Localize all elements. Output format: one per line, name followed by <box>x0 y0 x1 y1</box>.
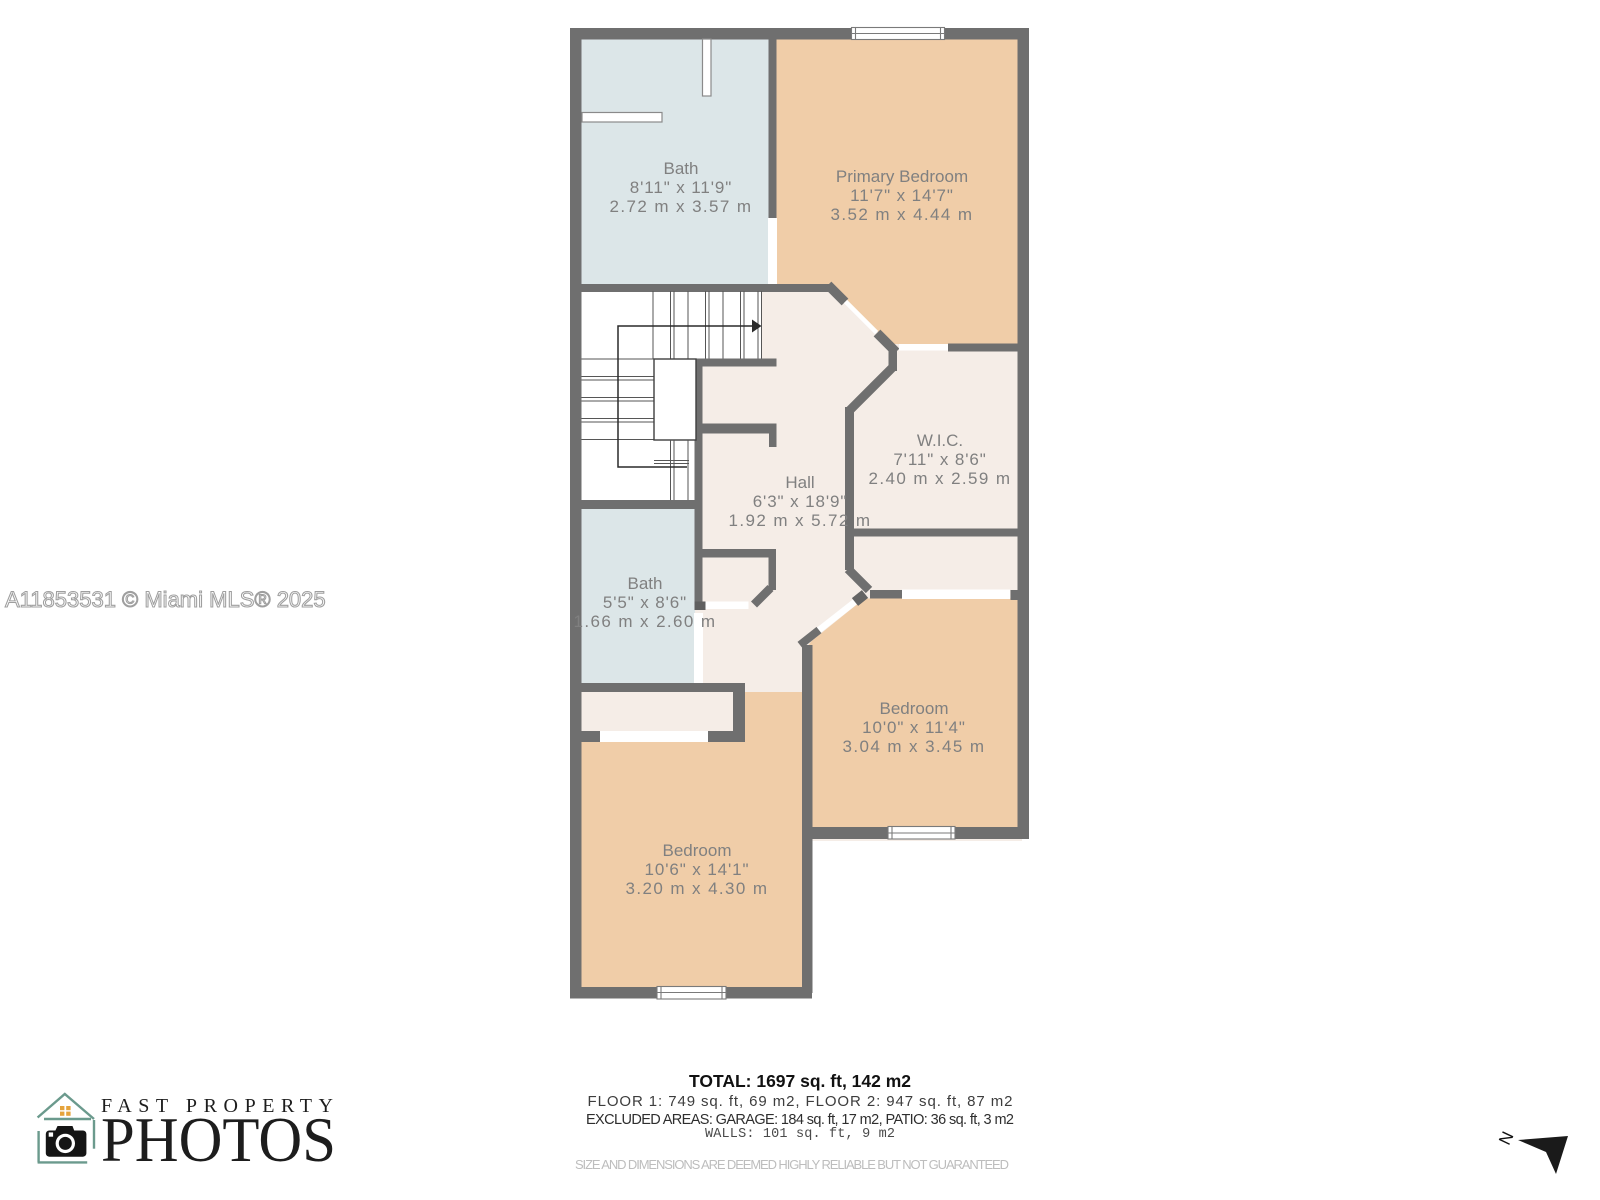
svg-text:3.04 m x 3.45 m: 3.04 m x 3.45 m <box>843 737 986 756</box>
svg-text:10'0" x 11'4": 10'0" x 11'4" <box>862 718 966 737</box>
svg-text:W.I.C.: W.I.C. <box>917 431 963 450</box>
svg-text:A11853531 © Miami MLS® 2025: A11853531 © Miami MLS® 2025 <box>5 587 326 612</box>
svg-text:PHOTOS: PHOTOS <box>101 1104 336 1175</box>
svg-text:Bedroom: Bedroom <box>663 841 732 860</box>
svg-text:Bath: Bath <box>628 574 663 593</box>
svg-text:5'5" x 8'6": 5'5" x 8'6" <box>603 593 687 612</box>
svg-text:SIZE AND DIMENSIONS ARE DEEMED: SIZE AND DIMENSIONS ARE DEEMED HIGHLY RE… <box>575 1157 1009 1172</box>
svg-text:6'3" x 18'9": 6'3" x 18'9" <box>753 492 848 511</box>
svg-text:7'11" x 8'6": 7'11" x 8'6" <box>893 450 986 469</box>
svg-text:10'6" x 14'1": 10'6" x 14'1" <box>645 860 750 879</box>
svg-text:FLOOR 1: 749 sq. ft, 69 m2, FL: FLOOR 1: 749 sq. ft, 69 m2, FLOOR 2: 947… <box>588 1093 1013 1110</box>
svg-text:Bath: Bath <box>664 159 699 178</box>
svg-text:EXCLUDED AREAS: GARAGE: 184 sq: EXCLUDED AREAS: GARAGE: 184 sq. ft, 17 m… <box>586 1112 1014 1128</box>
svg-text:11'7" x 14'7": 11'7" x 14'7" <box>850 186 954 205</box>
svg-text:3.20 m x 4.30 m: 3.20 m x 4.30 m <box>626 879 769 898</box>
svg-text:1.66 m x 2.60 m: 1.66 m x 2.60 m <box>574 612 717 631</box>
svg-text:2.40 m x 2.59 m: 2.40 m x 2.59 m <box>869 469 1012 488</box>
svg-text:Hall: Hall <box>785 473 814 492</box>
svg-text:WALLS: 101 sq. ft, 9 m2: WALLS: 101 sq. ft, 9 m2 <box>705 1127 895 1142</box>
svg-text:1.92 m x 5.72 m: 1.92 m x 5.72 m <box>729 511 872 530</box>
svg-text:TOTAL: 1697 sq. ft, 142 m2: TOTAL: 1697 sq. ft, 142 m2 <box>689 1071 911 1091</box>
svg-text:3.52 m x 4.44 m: 3.52 m x 4.44 m <box>831 205 974 224</box>
svg-text:Primary Bedroom: Primary Bedroom <box>836 167 968 186</box>
svg-text:8'11" x 11'9": 8'11" x 11'9" <box>630 178 732 197</box>
svg-text:2.72 m x 3.57 m: 2.72 m x 3.57 m <box>610 197 753 216</box>
svg-text:Bedroom: Bedroom <box>880 699 949 718</box>
